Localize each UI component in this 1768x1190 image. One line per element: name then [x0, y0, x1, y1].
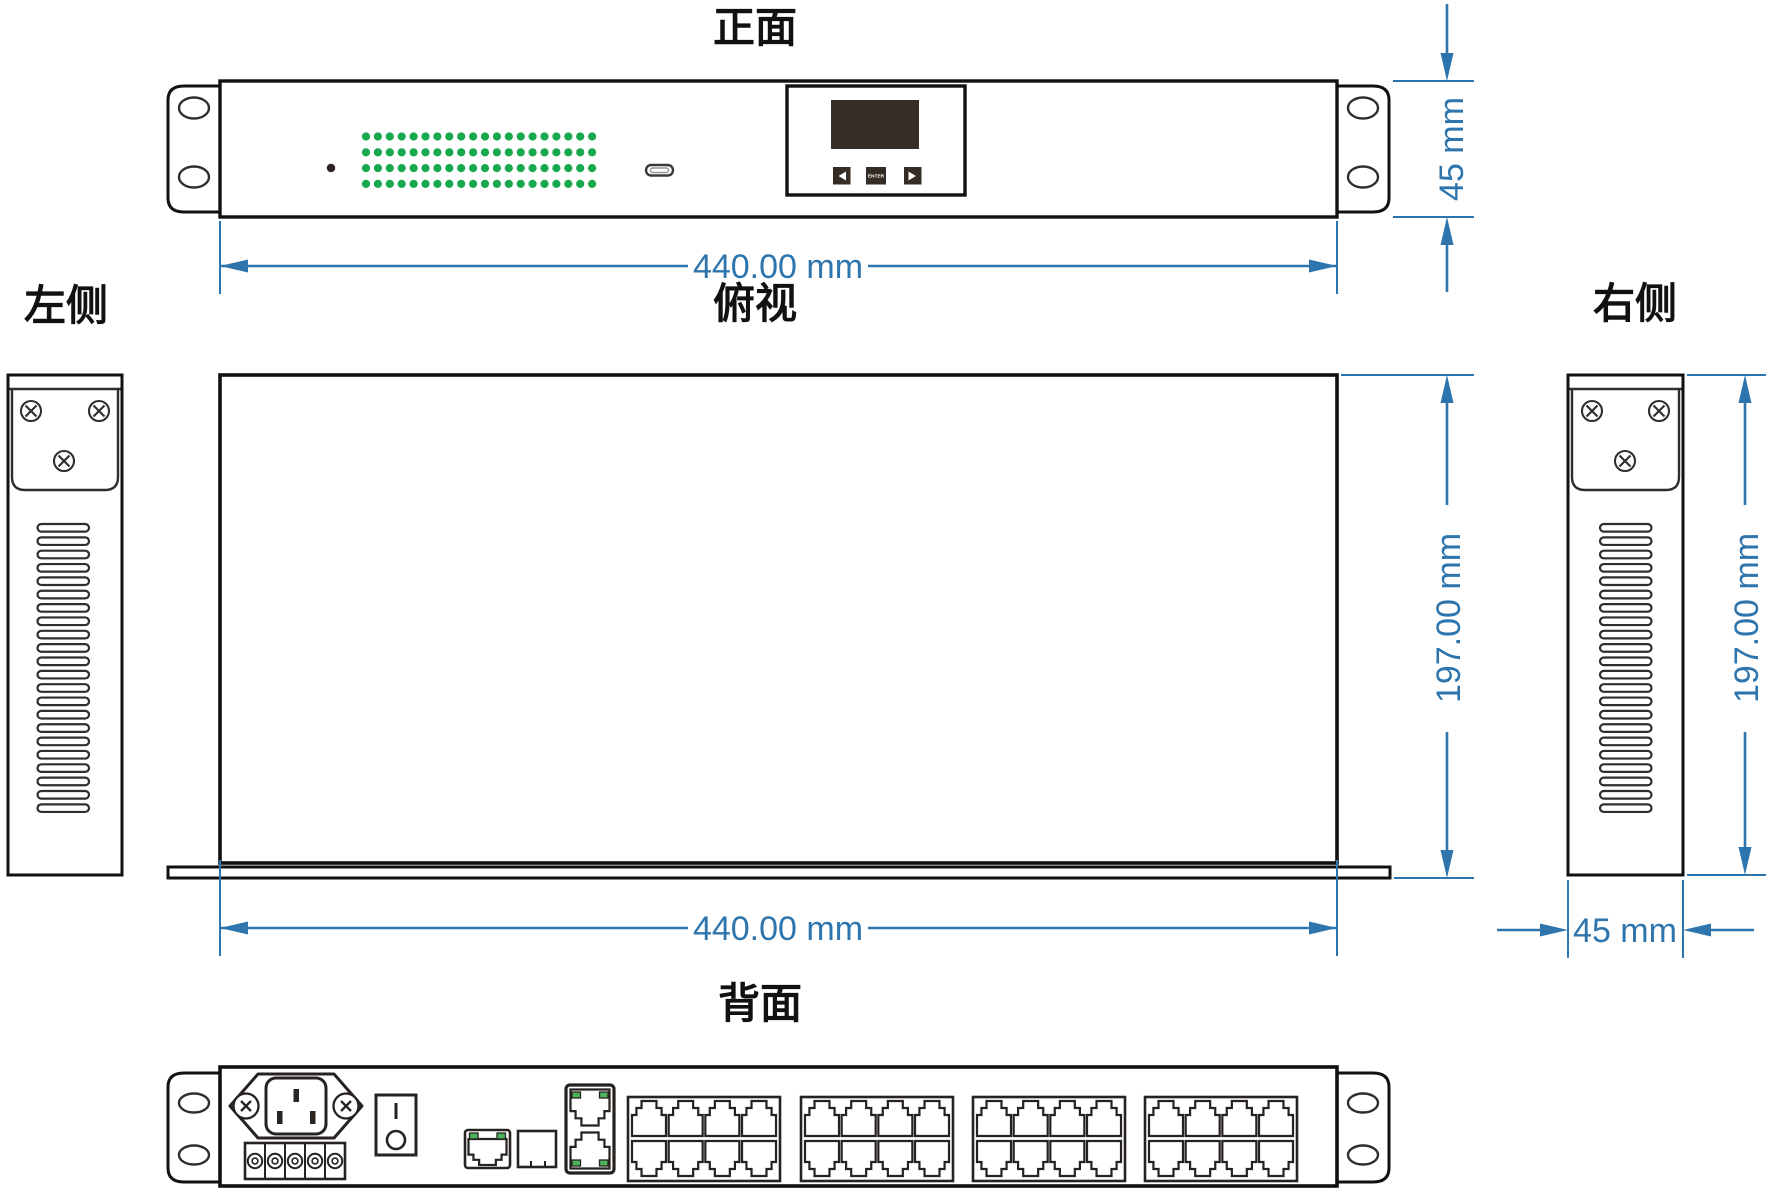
lcd-screen: [831, 100, 919, 149]
mounting-hole: [179, 98, 209, 119]
neutral-pin: [310, 1111, 316, 1124]
dimension-label: 440.00 mm: [693, 910, 863, 948]
arrowhead: [1309, 922, 1337, 935]
ethernet-port-pair: [566, 1085, 614, 1173]
mounting-hole: [1348, 1146, 1378, 1165]
title-rear-view: 背面: [718, 980, 802, 1027]
mounting-hole: [1348, 1094, 1378, 1113]
dimension-side-depth: 197.00 mm: [1687, 375, 1766, 875]
dimension-side-width: 45 mm: [1497, 880, 1754, 958]
top-view-body: [220, 375, 1337, 863]
front-view: ENTER: [168, 81, 1389, 217]
front-panel-flange: [168, 867, 1390, 878]
left-side-view: [8, 375, 122, 875]
title-left-side-view: 左侧: [24, 282, 108, 329]
arrowhead: [1441, 53, 1454, 81]
dimension-front-height: 45 mm: [1393, 4, 1474, 292]
ethernet-port: [465, 1130, 510, 1168]
rear-view: [168, 1067, 1389, 1186]
arrowhead: [1739, 847, 1752, 875]
earth-pin: [294, 1089, 300, 1102]
arrowhead: [1309, 260, 1337, 273]
status-led: [327, 164, 335, 172]
dimension-label: 197.00 mm: [1430, 533, 1468, 703]
inlet-screw: [334, 1094, 359, 1119]
mounting-hole: [1348, 98, 1378, 119]
mechanical-drawing-page: 正面 左侧 俯视 右侧 背面: [0, 0, 1768, 1190]
inlet-screw: [234, 1094, 259, 1119]
arrowhead: [1441, 217, 1454, 245]
arrowhead: [1441, 375, 1454, 403]
arrowhead: [1441, 850, 1454, 878]
mounting-hole: [179, 1146, 209, 1165]
enter-button: ENTER: [866, 167, 886, 185]
iec-power-inlet: [230, 1074, 362, 1138]
dimension-label: 197.00 mm: [1728, 533, 1766, 703]
sfp-slot: [518, 1131, 556, 1167]
technical-drawing: 正面 左侧 俯视 右侧 背面: [0, 0, 1768, 1190]
title-top-view: 俯视: [713, 280, 797, 327]
dimension-label: 440.00 mm: [693, 248, 863, 286]
line-pin: [277, 1111, 283, 1124]
top-view: [168, 375, 1390, 878]
title-right-side-view: 右侧: [1593, 280, 1677, 327]
usb-c-port: [646, 165, 673, 176]
dimension-label: 45 mm: [1573, 912, 1677, 950]
arrowhead: [1683, 924, 1711, 937]
mounting-hole: [179, 167, 209, 188]
title-front-view: 正面: [713, 4, 797, 51]
mounting-hole: [179, 1094, 209, 1113]
display-module: ENTER: [787, 86, 965, 195]
prev-button: [833, 167, 851, 185]
arrowhead: [220, 260, 248, 273]
enter-button-label: ENTER: [868, 174, 885, 180]
arrowhead: [1739, 375, 1752, 403]
terminal-block: [245, 1143, 345, 1179]
right-side-view: [1568, 375, 1683, 875]
next-button: [904, 167, 922, 185]
dimension-top-depth: 197.00 mm: [1341, 375, 1474, 878]
mounting-hole: [1348, 167, 1378, 188]
dimension-label: 45 mm: [1433, 97, 1471, 201]
dimension-front-width: 440.00 mm: [220, 221, 1337, 294]
arrowhead: [220, 922, 248, 935]
power-switch: [376, 1095, 416, 1155]
arrowhead: [1540, 924, 1568, 937]
